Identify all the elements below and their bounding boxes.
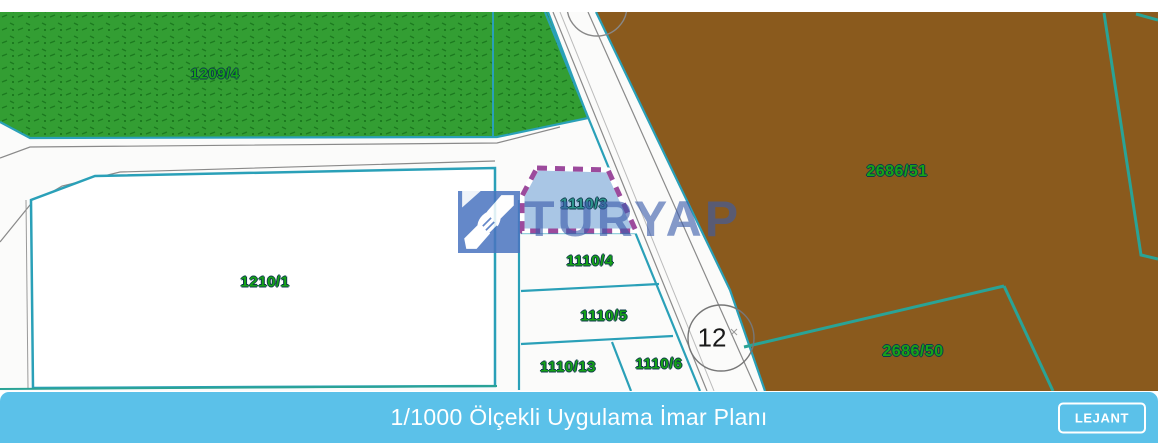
parcel-label-1110-13: 1110/13 <box>540 359 596 376</box>
parcel-label-2686-50: 2686/50 <box>882 343 943 361</box>
road-width-value: 12 <box>698 323 727 354</box>
parcel-label-1110-5: 1110/5 <box>580 308 627 325</box>
turyap-handshake-icon <box>458 190 520 254</box>
watermark: TURYAP <box>458 190 741 254</box>
parcel-label-1110-6: 1110/6 <box>635 356 682 373</box>
plan-title-bar: 1/1000 Ölçekli Uygulama İmar Planı LEJAN… <box>0 392 1158 443</box>
plan-viewer: 1209/4 1210/1 1110/3 1110/4 1110/5 1110/… <box>0 0 1158 443</box>
legend-button[interactable]: LEJANT <box>1058 402 1146 433</box>
plan-title: 1/1000 Ölçekli Uygulama İmar Planı <box>390 404 767 431</box>
parcel-label-2686-51: 2686/51 <box>866 163 927 181</box>
turyap-wordmark: TURYAP <box>524 194 741 244</box>
parcel-label-1110-4: 1110/4 <box>566 253 613 270</box>
parcel-label-1209-4: 1209/4 <box>191 66 240 83</box>
green-zone-hatch <box>0 12 588 138</box>
parcel-label-1210-1: 1210/1 <box>241 274 290 291</box>
